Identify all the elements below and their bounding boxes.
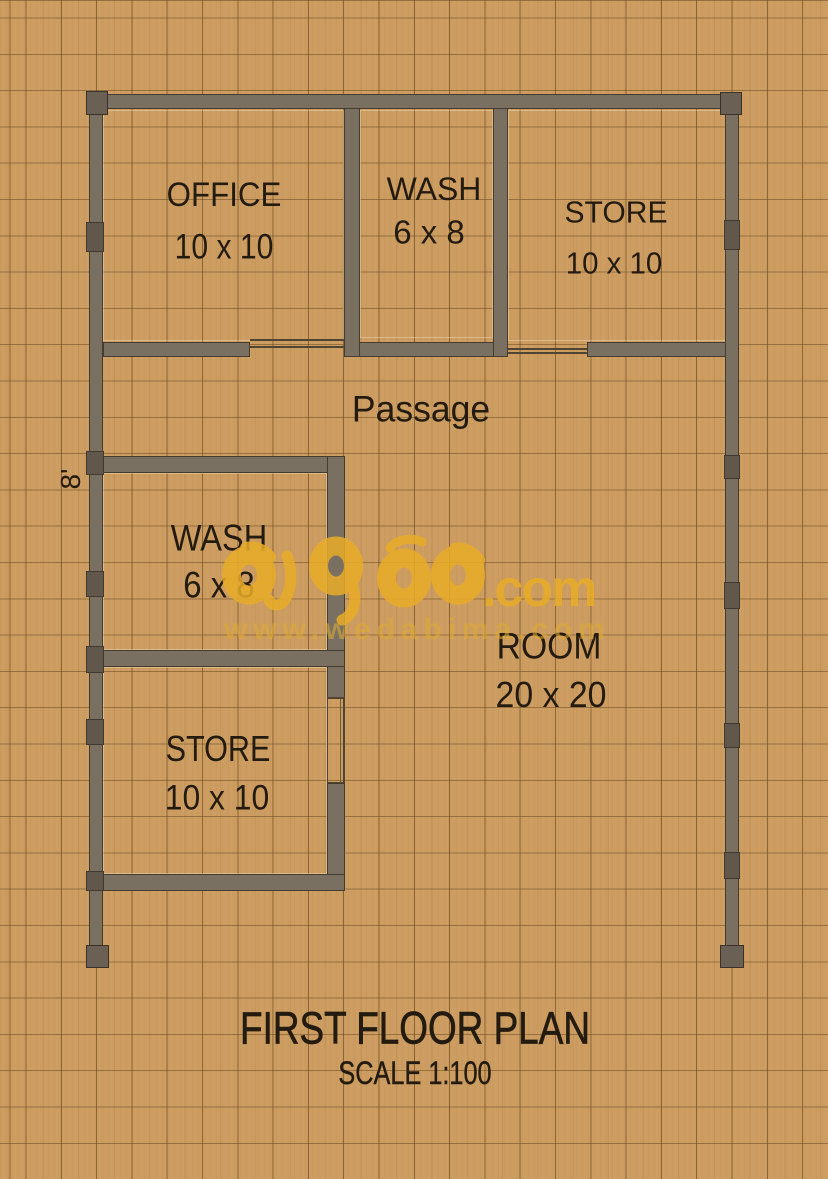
svg-text:.com: .com xyxy=(482,560,595,618)
svg-text:www.wedabima.com: www.wedabima.com xyxy=(223,613,611,646)
